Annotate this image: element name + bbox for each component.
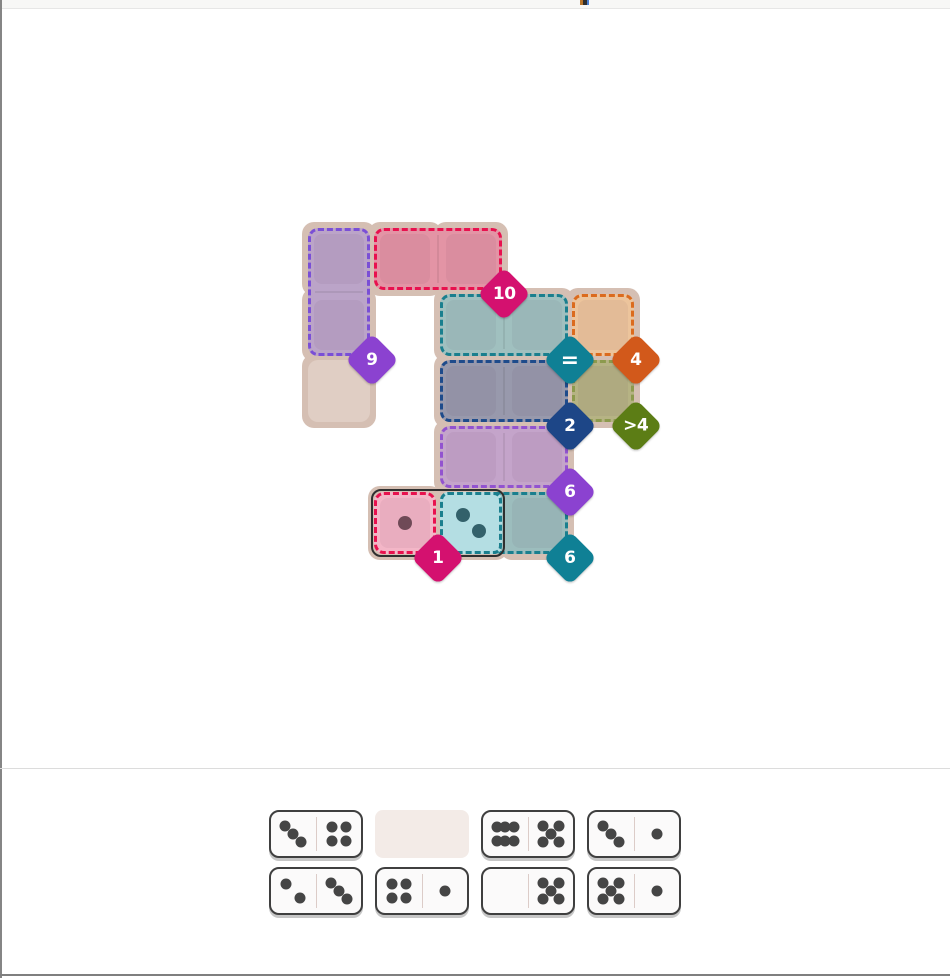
- pip: [553, 837, 564, 848]
- pip: [401, 893, 412, 904]
- region-cell-seam: [503, 367, 505, 415]
- tray-domino-3-1[interactable]: [587, 810, 681, 858]
- game-page: 910=42>4616: [0, 0, 950, 978]
- pip: [340, 836, 351, 847]
- pip: [651, 886, 662, 897]
- domino-half-right: [317, 869, 362, 913]
- badge-label: 4: [630, 350, 641, 370]
- tray-domino-2-3[interactable]: [269, 867, 363, 915]
- pip: [326, 836, 337, 847]
- tray-domino-6-5[interactable]: [481, 810, 575, 858]
- pipbox: [640, 816, 675, 852]
- pip: [341, 894, 352, 905]
- region-cell[interactable]: [512, 432, 562, 482]
- region-nine[interactable]: [308, 228, 370, 356]
- badge-label: =: [561, 348, 579, 373]
- pip: [614, 894, 625, 905]
- region-two[interactable]: [440, 360, 568, 422]
- domino-half-left: [271, 812, 316, 856]
- pip: [553, 894, 564, 905]
- badge-label: 6: [564, 548, 575, 568]
- region-cell[interactable]: [314, 234, 364, 284]
- badge-label: 9: [366, 350, 377, 370]
- domino-half-right: [423, 869, 468, 913]
- pip: [295, 893, 306, 904]
- tray-domino-3-4[interactable]: [269, 810, 363, 858]
- pipbox: [428, 873, 463, 909]
- region-cell[interactable]: [446, 300, 496, 350]
- badge-label: 2: [564, 416, 575, 436]
- region-cell[interactable]: [446, 234, 496, 284]
- pip: [537, 894, 548, 905]
- region-ten[interactable]: [374, 228, 502, 290]
- tray-domino-5-1[interactable]: [587, 867, 681, 915]
- pipbox: [382, 873, 417, 909]
- domino-half-right: [529, 869, 574, 913]
- tray-domino-0-5[interactable]: [481, 867, 575, 915]
- pipbox: [322, 816, 357, 852]
- domino-half-left: [589, 869, 634, 913]
- badge-label: 10: [493, 284, 516, 304]
- region-cell-seam: [315, 291, 363, 293]
- pip: [439, 886, 450, 897]
- pipbox: [640, 873, 675, 909]
- pip: [340, 821, 351, 832]
- domino-half-left: [483, 812, 528, 856]
- pipbox: [276, 873, 311, 909]
- region-cell[interactable]: [446, 432, 496, 482]
- region-cell-seam: [503, 433, 505, 481]
- pipbox: [534, 873, 569, 909]
- region-cell[interactable]: [314, 300, 364, 350]
- region-six-purple[interactable]: [440, 426, 568, 488]
- pipbox: [488, 873, 523, 909]
- pip: [508, 835, 519, 846]
- domino-half-right: [635, 812, 680, 856]
- pipbox: [594, 816, 629, 852]
- pip: [296, 837, 307, 848]
- region-cell[interactable]: [578, 300, 628, 350]
- domino-half-right: [317, 812, 362, 856]
- pip: [537, 837, 548, 848]
- pip: [387, 878, 398, 889]
- pip: [651, 829, 662, 840]
- tray-domino-4-1[interactable]: [375, 867, 469, 915]
- domino-tray: [0, 768, 950, 978]
- domino-half-right: [635, 869, 680, 913]
- region-cell[interactable]: [578, 366, 628, 416]
- region-cell-seam: [437, 235, 439, 283]
- tray-slot-empty: [375, 810, 469, 858]
- region-cell[interactable]: [512, 300, 562, 350]
- domino-half-left: [271, 869, 316, 913]
- domino-half-left: [483, 869, 528, 913]
- pip: [281, 878, 292, 889]
- pip: [387, 893, 398, 904]
- tray-row-2: [0, 867, 950, 915]
- region-cell[interactable]: [512, 366, 562, 416]
- pipbox: [534, 816, 569, 852]
- pipbox: [276, 816, 311, 852]
- pip: [401, 878, 412, 889]
- region-cell[interactable]: [512, 498, 562, 548]
- region-cell[interactable]: [380, 234, 430, 284]
- pip: [508, 822, 519, 833]
- pipbox: [322, 873, 357, 909]
- pip: [326, 821, 337, 832]
- pipbox: [594, 873, 629, 909]
- domino-half-left: [589, 812, 634, 856]
- pip: [614, 837, 625, 848]
- region-cell[interactable]: [446, 366, 496, 416]
- domino-half-right: [529, 812, 574, 856]
- badge-label: >4: [623, 416, 648, 436]
- pipbox: [488, 816, 523, 852]
- badge-label: 1: [432, 548, 443, 568]
- tray-row-1: [0, 810, 950, 858]
- badge-label: 6: [564, 482, 575, 502]
- domino-half-left: [377, 869, 422, 913]
- pip: [598, 894, 609, 905]
